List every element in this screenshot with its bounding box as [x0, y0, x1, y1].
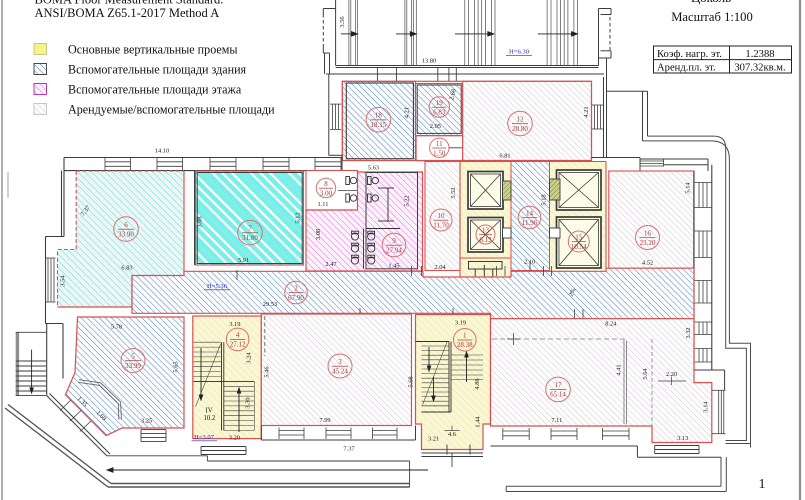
svg-text:3.14: 3.14 — [703, 401, 710, 413]
svg-text:17: 17 — [555, 381, 563, 389]
svg-text:1.50: 1.50 — [433, 149, 446, 157]
svg-text:13.80: 13.80 — [422, 58, 436, 65]
svg-text:Н=6.30: Н=6.30 — [509, 49, 530, 56]
svg-text:Цоколь: Цоколь — [691, 0, 731, 5]
svg-text:3.30: 3.30 — [245, 397, 252, 408]
svg-text:6.83: 6.83 — [433, 109, 446, 117]
svg-text:18: 18 — [375, 112, 383, 120]
svg-text:1: 1 — [463, 332, 467, 340]
svg-text:Арендуемые/вспомогательные пло: Арендуемые/вспомогательные площади — [68, 103, 275, 117]
svg-text:IV: IV — [206, 408, 213, 415]
svg-text:5.18: 5.18 — [541, 194, 548, 205]
svg-text:Н=5.36: Н=5.36 — [207, 283, 228, 290]
svg-text:5.65: 5.65 — [173, 361, 180, 372]
svg-text:31.80: 31.80 — [242, 234, 258, 242]
svg-text:4.86: 4.86 — [474, 378, 481, 389]
svg-text:7.11: 7.11 — [551, 417, 562, 424]
svg-text:3.19: 3.19 — [455, 320, 466, 327]
svg-text:13: 13 — [482, 227, 490, 235]
svg-text:1.2388: 1.2388 — [745, 49, 774, 60]
svg-text:5.52: 5.52 — [450, 187, 457, 198]
svg-text:5: 5 — [131, 352, 135, 360]
svg-text:8: 8 — [324, 180, 328, 188]
svg-text:5.22: 5.22 — [404, 195, 411, 206]
svg-text:33.99: 33.99 — [125, 362, 141, 370]
svg-text:33.90: 33.90 — [118, 230, 134, 238]
svg-text:4.21: 4.21 — [583, 106, 590, 117]
svg-text:67.90: 67.90 — [288, 294, 304, 302]
svg-text:3.08: 3.08 — [315, 229, 322, 240]
svg-text:9: 9 — [392, 237, 396, 245]
svg-text:5.64: 5.64 — [642, 368, 649, 380]
svg-text:Масштаб 1:100: Масштаб 1:100 — [671, 10, 753, 24]
svg-text:6.81: 6.81 — [499, 153, 510, 160]
svg-text:15: 15 — [575, 233, 583, 241]
svg-text:3.21: 3.21 — [428, 435, 439, 442]
svg-text:1.44: 1.44 — [475, 416, 482, 428]
svg-text:45.24: 45.24 — [332, 367, 348, 375]
svg-text:7: 7 — [248, 224, 252, 232]
svg-text:14.10: 14.10 — [155, 148, 169, 155]
svg-text:307.32кв.м.: 307.32кв.м. — [734, 63, 785, 74]
svg-text:10.2: 10.2 — [204, 415, 216, 422]
svg-text:4.52: 4.52 — [642, 259, 653, 266]
svg-text:1: 1 — [759, 477, 766, 492]
svg-text:3: 3 — [338, 358, 342, 366]
svg-text:11.70: 11.70 — [433, 221, 449, 229]
svg-text:11: 11 — [436, 140, 443, 148]
svg-text:3.56: 3.56 — [339, 16, 346, 27]
svg-text:5.12: 5.12 — [295, 212, 302, 223]
svg-text:4.41: 4.41 — [616, 364, 623, 375]
svg-text:1.11: 1.11 — [318, 201, 329, 208]
svg-text:8.24: 8.24 — [605, 321, 617, 328]
svg-text:5.78: 5.78 — [111, 324, 122, 331]
svg-text:29.53: 29.53 — [263, 301, 277, 308]
svg-text:ANSI/BOMA Z65.1-2017 Method A: ANSI/BOMA Z65.1-2017 Method A — [35, 6, 220, 20]
svg-text:16: 16 — [644, 229, 652, 237]
svg-text:6.83: 6.83 — [121, 264, 132, 271]
svg-text:12: 12 — [517, 115, 525, 123]
svg-text:1.45: 1.45 — [388, 263, 399, 270]
svg-text:2.05: 2.05 — [430, 123, 441, 130]
svg-text:3.13: 3.13 — [677, 435, 688, 442]
svg-text:5.46: 5.46 — [264, 366, 271, 377]
svg-text:5.91: 5.91 — [238, 257, 249, 264]
svg-text:Н=3.07: Н=3.07 — [194, 434, 215, 441]
svg-text:5.63: 5.63 — [368, 165, 379, 172]
svg-text:11.96: 11.96 — [522, 219, 538, 227]
svg-text:7.99: 7.99 — [319, 417, 330, 424]
svg-text:3.20: 3.20 — [229, 435, 240, 442]
svg-text:3.08: 3.08 — [197, 216, 204, 227]
svg-text:19: 19 — [436, 99, 444, 107]
svg-text:4: 4 — [236, 331, 240, 339]
svg-text:10: 10 — [438, 212, 446, 220]
svg-text:Коэф. нагр. эт.: Коэф. нагр. эт. — [657, 49, 722, 60]
svg-text:65.14: 65.14 — [550, 391, 566, 399]
svg-text:27.94: 27.94 — [386, 246, 402, 254]
svg-text:7.37: 7.37 — [343, 446, 355, 453]
svg-text:3.25: 3.25 — [141, 418, 152, 425]
svg-text:3.32: 3.32 — [685, 327, 692, 338]
svg-text:6: 6 — [124, 221, 128, 229]
svg-text:10.54: 10.54 — [571, 243, 587, 251]
svg-text:3.19: 3.19 — [229, 321, 240, 328]
svg-text:Аренд.пл. эт.: Аренд.пл. эт. — [657, 63, 716, 74]
svg-text:Основные вертикальные проемы: Основные вертикальные проемы — [68, 43, 238, 57]
svg-text:2.04: 2.04 — [434, 264, 446, 271]
svg-text:5.14: 5.14 — [685, 182, 692, 194]
svg-text:Вспомогательные площади здания: Вспомогательные площади здания — [68, 63, 247, 77]
svg-text:2.47: 2.47 — [325, 261, 337, 268]
svg-text:18.15: 18.15 — [371, 121, 387, 129]
svg-text:28.38: 28.38 — [457, 341, 473, 349]
svg-text:3.54: 3.54 — [60, 275, 67, 287]
svg-text:14: 14 — [526, 209, 534, 217]
svg-text:Вспомогательные площади этажа: Вспомогательные площади этажа — [68, 83, 242, 97]
svg-text:27.12: 27.12 — [230, 341, 246, 349]
svg-text:3.00: 3.00 — [320, 190, 333, 198]
svg-text:4.6: 4.6 — [448, 431, 456, 438]
svg-text:5.68: 5.68 — [408, 376, 415, 387]
svg-text:28.80: 28.80 — [512, 125, 528, 133]
svg-text:2: 2 — [294, 284, 298, 292]
svg-text:6.13: 6.13 — [479, 236, 492, 244]
svg-text:3.24: 3.24 — [246, 352, 253, 364]
svg-text:23.20: 23.20 — [640, 239, 656, 247]
svg-text:4.21: 4.21 — [403, 107, 410, 118]
